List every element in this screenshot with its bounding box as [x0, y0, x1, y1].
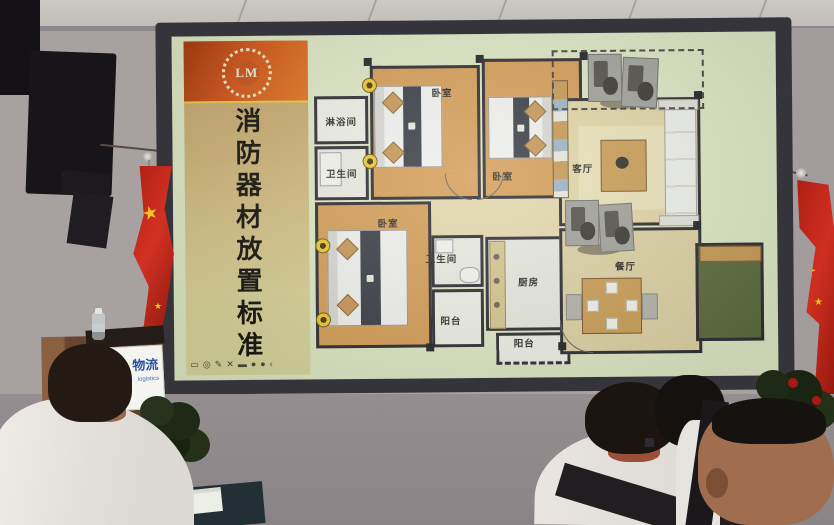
ink-black-icon[interactable]: ●: [251, 359, 257, 369]
room-label-kitchen: 厨房: [504, 274, 554, 288]
wall-post: [476, 55, 484, 63]
fire-equipment-photo: [621, 57, 659, 109]
red-flower: [812, 396, 821, 405]
room-label-balcony-bottom: 阳台: [499, 335, 549, 349]
eraser-icon[interactable]: ✕: [226, 359, 234, 370]
bed-bottom: [327, 230, 408, 327]
fire-equipment-photo: [588, 54, 622, 102]
bedside-lamp: [316, 312, 331, 327]
place-setting: [587, 300, 599, 312]
wall-post: [426, 343, 434, 351]
water-bottle: [92, 312, 105, 340]
flag-star: ★: [140, 202, 160, 224]
room-label-bedroom-top: 卧室: [417, 85, 467, 99]
flagpole-finial-right: [796, 168, 806, 178]
cursor-icon[interactable]: ▭: [190, 359, 199, 370]
audience-person-1-head: [48, 344, 132, 422]
fire-mask: [615, 226, 630, 245]
headboard: [375, 87, 385, 167]
training-room-photo: LM 消防器材放置标准 ▭◎✎✕▬●●‹: [0, 0, 834, 525]
bed-decor: [367, 275, 374, 282]
room-label-living: 客厅: [558, 161, 608, 175]
slide: LM 消防器材放置标准 ▭◎✎✕▬●●‹: [172, 31, 779, 380]
fire-equipment-photo: [565, 200, 599, 246]
floorplan: 淋浴间 卫生间 卧室 卧室 客厅 卧室 卫生间 阳台 厨房 阳台 餐厅: [312, 36, 777, 376]
flag-star: ★: [814, 298, 823, 308]
room-label-bathroom-lower: 卫生间: [416, 251, 466, 265]
projection-screen: LM 消防器材放置标准 ▭◎✎✕▬●●‹: [155, 17, 794, 395]
bottle-cap: [95, 308, 102, 314]
bed-decor: [517, 125, 524, 132]
wall-post: [364, 58, 372, 66]
bed-right: [488, 96, 553, 159]
stove-burner: [494, 302, 500, 308]
audience-person-3-ear-shadow: [706, 468, 728, 498]
room-label-dining: 餐厅: [600, 258, 650, 272]
wall-post: [693, 221, 701, 229]
flag-star: ★: [154, 302, 162, 311]
collapse-toolbar-icon[interactable]: ‹: [270, 359, 273, 369]
room-label-balcony-left: 阳台: [426, 313, 476, 327]
room-label-bathroom-upper: 卫生间: [317, 166, 367, 180]
fire-mask: [603, 77, 618, 96]
room-label-bedroom-right: 卧室: [478, 169, 528, 183]
room-label-shower: 淋浴间: [316, 114, 366, 128]
hallway-floor: [431, 196, 561, 237]
entrance-cabinet: [699, 246, 761, 263]
highlighter-icon[interactable]: ▬: [238, 359, 247, 369]
panel-logo-band: LM: [184, 40, 309, 103]
stove-burner: [493, 254, 499, 260]
dining-chair: [642, 293, 658, 319]
pillow: [337, 294, 360, 317]
room-label-bedroom-bottom: 卧室: [363, 216, 413, 230]
emblem-monogram: LM: [235, 65, 258, 81]
pillow: [382, 141, 405, 164]
pillow: [336, 238, 359, 261]
place-setting: [606, 318, 618, 330]
place-setting: [626, 300, 638, 312]
wall-post: [558, 342, 566, 350]
pillow: [382, 91, 405, 114]
fire-mask: [637, 82, 653, 102]
pen-icon[interactable]: ✎: [215, 359, 223, 370]
speaker-bracket-arm: [67, 191, 114, 248]
fire-brigade-emblem: LM: [222, 48, 272, 98]
flag-star: ★: [138, 292, 146, 301]
toilet: [460, 267, 480, 283]
kettle: [616, 157, 629, 169]
audience-person-3-hair: [712, 398, 826, 444]
bedside-lamp: [315, 238, 330, 253]
place-setting: [606, 282, 618, 294]
fire-mask: [581, 222, 596, 240]
slide-title: 消防器材放置标准: [228, 107, 267, 363]
presenter-toolbar: ▭◎✎✕▬●●‹: [190, 353, 320, 368]
stove-burner: [494, 278, 500, 284]
ink-red-icon[interactable]: ●: [260, 359, 266, 369]
shirt-tag: [645, 438, 654, 447]
bottle-label: [92, 324, 105, 332]
bed-runner: [360, 231, 381, 325]
sofa: [664, 105, 697, 217]
fire-equipment-photo: [598, 203, 635, 253]
red-flower: [788, 378, 798, 388]
laser-pointer-icon[interactable]: ◎: [203, 359, 211, 370]
dining-chair: [566, 294, 582, 320]
bedside-lamp: [362, 78, 377, 93]
slide-title-panel: LM 消防器材放置标准: [184, 40, 311, 375]
bed-decor: [408, 123, 415, 130]
